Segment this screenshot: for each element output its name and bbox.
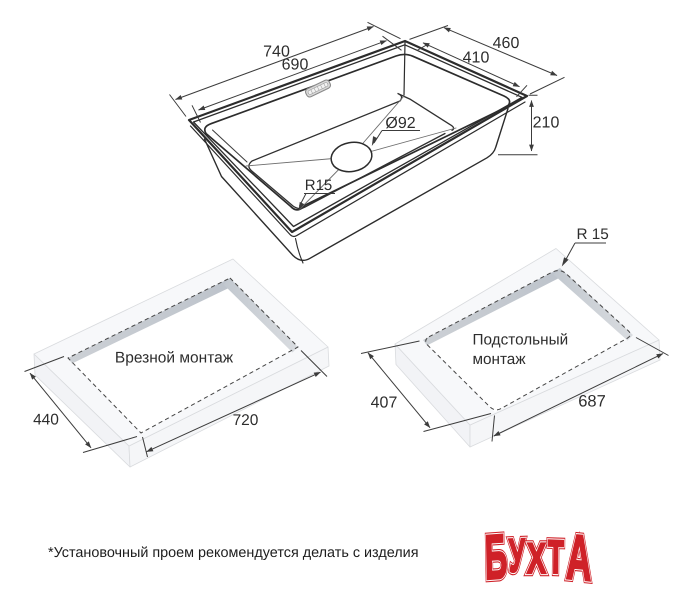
svg-text:Подстольный: Подстольный [473, 332, 569, 349]
svg-text:Врезной монтаж: Врезной монтаж [115, 350, 234, 367]
svg-text:440: 440 [33, 412, 59, 429]
svg-text:R 15: R 15 [577, 226, 609, 243]
svg-text:460: 460 [493, 35, 520, 52]
svg-text:Т: Т [548, 530, 564, 583]
svg-text:690: 690 [282, 57, 309, 74]
svg-text:720: 720 [233, 412, 259, 429]
svg-text:У: У [509, 528, 526, 582]
svg-text:410: 410 [463, 50, 490, 67]
svg-text:Ø92: Ø92 [385, 115, 415, 132]
svg-text:687: 687 [578, 393, 606, 411]
svg-text:210: 210 [533, 115, 560, 132]
svg-text:монтаж: монтаж [473, 351, 527, 368]
svg-text:Х: Х [527, 535, 546, 583]
svg-text:R15: R15 [305, 177, 333, 194]
svg-text:*Установочный проем рекомендуе: *Установочный проем рекомендуется делать… [48, 545, 419, 561]
svg-text:А: А [565, 520, 592, 592]
svg-text:407: 407 [371, 395, 398, 412]
svg-text:Б: Б [484, 522, 508, 592]
